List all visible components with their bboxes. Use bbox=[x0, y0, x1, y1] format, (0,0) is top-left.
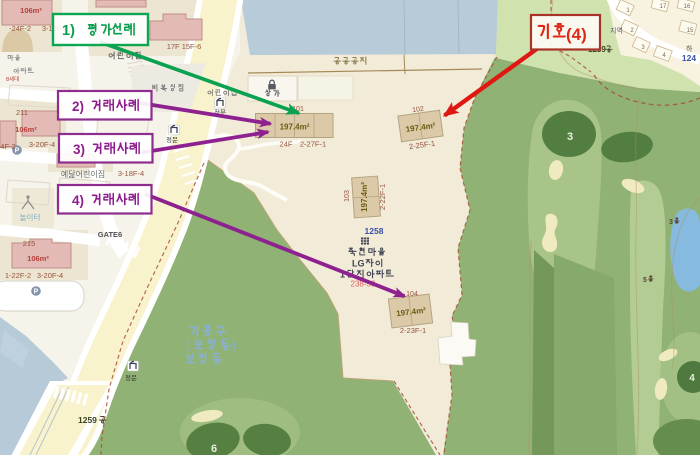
svg-text:197.4m²: 197.4m² bbox=[360, 182, 369, 212]
svg-text:211: 211 bbox=[16, 108, 28, 117]
svg-text:3-20F-4: 3-20F-4 bbox=[37, 271, 63, 280]
svg-text:17: 17 bbox=[660, 4, 667, 10]
svg-text:정문: 정문 bbox=[166, 135, 178, 144]
svg-text:지역: 지역 bbox=[610, 26, 623, 35]
svg-text:106m²: 106m² bbox=[15, 125, 37, 134]
svg-text:104: 104 bbox=[406, 291, 418, 298]
svg-text:3-18F-4: 3-18F-4 bbox=[118, 169, 144, 178]
svg-text:LG: LG bbox=[352, 259, 365, 269]
svg-text:1258: 1258 bbox=[365, 226, 384, 236]
svg-text:2-27F-1: 2-27F-1 bbox=[300, 140, 326, 149]
svg-text:3: 3 bbox=[669, 219, 673, 226]
svg-text:197.4m²: 197.4m² bbox=[280, 123, 310, 132]
svg-text:3): 3) bbox=[73, 142, 85, 157]
svg-text:5: 5 bbox=[643, 277, 647, 284]
svg-text:17F 15F-6: 17F 15F-6 bbox=[167, 42, 202, 51]
svg-text:-24F-2: -24F-2 bbox=[9, 24, 31, 33]
svg-text:하: 하 bbox=[686, 44, 693, 53]
svg-text:215: 215 bbox=[23, 239, 36, 248]
svg-text:3-20F-4: 3-20F-4 bbox=[29, 140, 55, 149]
svg-text:3: 3 bbox=[567, 131, 573, 143]
svg-text:106m²: 106m² bbox=[20, 6, 42, 15]
svg-text:예닮어린이집: 예닮어린이집 bbox=[61, 169, 105, 179]
svg-text:4): 4) bbox=[72, 193, 84, 208]
svg-text:GATE6: GATE6 bbox=[98, 230, 122, 239]
svg-text:): ) bbox=[232, 338, 236, 352]
svg-text:2-23F-1: 2-23F-1 bbox=[400, 326, 426, 335]
svg-text:1259: 1259 bbox=[78, 415, 97, 425]
svg-text:2): 2) bbox=[72, 99, 84, 114]
svg-text:(4): (4) bbox=[566, 25, 587, 44]
svg-text:1): 1) bbox=[62, 23, 75, 39]
svg-text:6: 6 bbox=[211, 443, 217, 455]
svg-text:8세대: 8세대 bbox=[6, 75, 19, 83]
svg-text:1-22F-2: 1-22F-2 bbox=[5, 271, 31, 280]
svg-text:124: 124 bbox=[682, 53, 696, 63]
svg-text:4F-2: 4F-2 bbox=[0, 142, 15, 151]
svg-text:4: 4 bbox=[689, 373, 695, 384]
svg-text:놀이터: 놀이터 bbox=[20, 212, 41, 222]
svg-text:P: P bbox=[34, 289, 39, 296]
svg-text:(: ( bbox=[186, 338, 190, 352]
svg-text:103: 103 bbox=[344, 190, 351, 202]
svg-text:16: 16 bbox=[684, 4, 691, 10]
svg-text:2-22F-1: 2-22F-1 bbox=[378, 184, 387, 210]
svg-text:24F: 24F bbox=[280, 140, 293, 149]
svg-text:정문: 정문 bbox=[125, 373, 137, 382]
svg-text:106m²: 106m² bbox=[27, 254, 49, 263]
svg-text:15: 15 bbox=[687, 28, 694, 34]
